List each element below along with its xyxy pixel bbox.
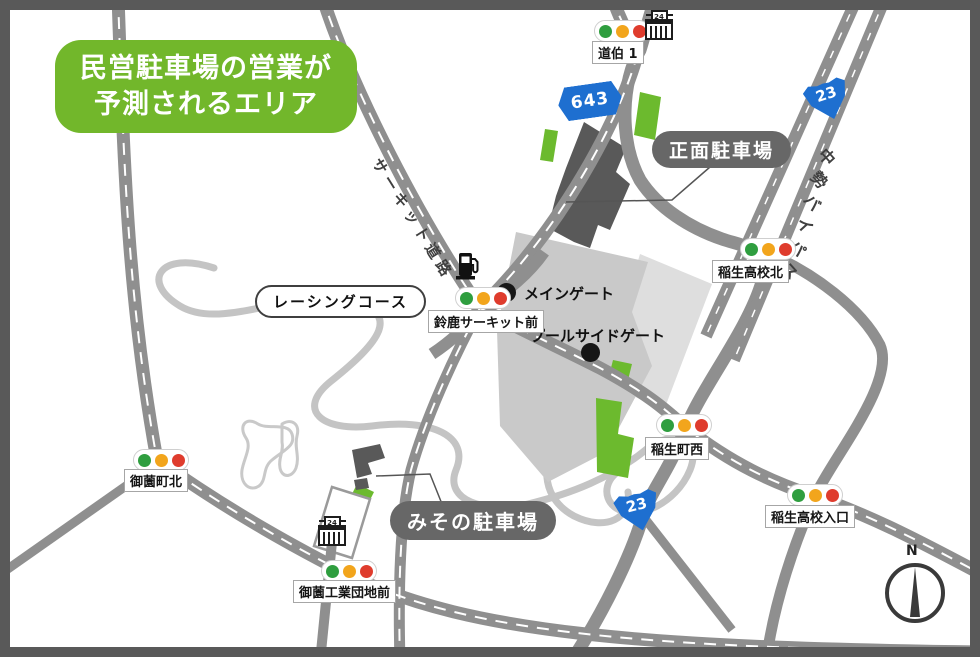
signal-green-light [792,489,805,502]
fuel-pump-icon [456,250,482,280]
signal-yellow-light [155,454,168,467]
signal-red-light [172,454,185,467]
signal-green-light [745,243,758,256]
label-inou-cho-nishi: 稲生町西 [645,437,709,460]
road-bypass-west [706,0,858,336]
signal-dohaku-1 [594,20,650,42]
signal-red-light [826,489,839,502]
front-parking-pill: 正面駐車場 [652,131,791,168]
signal-green-light [138,454,151,467]
signal-inou-koko-kita [740,238,796,260]
signal-red-light [779,243,792,256]
signal-inou-koko-iriguchi [787,484,843,506]
grandstand-building [548,122,630,248]
label-inou-koko-kita: 稲生高校北 [712,260,789,283]
label-suzuka-circuit-mae: 鈴鹿サーキット前 [428,310,544,333]
compass-needle [889,567,941,619]
road-bypass-connector [760,250,883,657]
signal-red-light [360,565,373,578]
signal-yellow-light [616,25,629,38]
signal-green-light [661,419,674,432]
poolside-gate-dot [581,343,600,362]
signal-misono-kogyo-danchi-mae [321,560,377,582]
area-banner: 民営駐車場の営業が 予測されるエリア [55,40,357,133]
label-inou-koko-iriguchi: 稲生高校入口 [765,505,855,528]
racing-course-pill: レーシングコース [255,285,426,318]
misono-parking-pill: みその駐車場 [390,501,556,540]
main-gate-label: メインゲート [524,283,614,304]
poolside-gate-label: プールサイドゲート [530,325,665,346]
convenience-store-icon: 24 [318,516,346,546]
signal-suzuka-circuit-mae [455,287,511,309]
compass-icon [885,563,945,623]
signal-red-light [633,25,646,38]
label-misono-cho-kita: 御薗町北 [124,469,188,492]
suzuka-parking-area-map: 民営駐車場の営業が 予測されるエリア サーキット道路 中勢バイパス 643 23… [0,0,980,657]
signal-green-light [326,565,339,578]
signal-yellow-light [477,292,490,305]
kart-course-outline [242,421,298,488]
signal-red-light [494,292,507,305]
signal-yellow-light [343,565,356,578]
signal-yellow-light [809,489,822,502]
banner-line2: 予測されるエリア [94,87,318,123]
signal-green-light [599,25,612,38]
convenience-store-icon: 24 [645,10,673,40]
store-building [645,19,673,40]
gas-station-icon [456,250,482,284]
signal-red-light [695,419,708,432]
compass-north-label: N [906,543,918,559]
signal-inou-cho-nishi [656,414,712,436]
signal-misono-cho-kita [133,449,189,471]
signal-yellow-light [762,243,775,256]
store-building [318,525,346,546]
banner-line1: 民営駐車場の営業が [80,51,332,87]
signal-yellow-light [678,419,691,432]
label-misono-kogyo-danchi-mae: 御薗工業団地前 [293,580,396,603]
misono-buildings [352,444,385,490]
label-dohaku-1: 道伯 1 [592,41,644,64]
signal-green-light [460,292,473,305]
road-stub-23 [646,520,732,630]
